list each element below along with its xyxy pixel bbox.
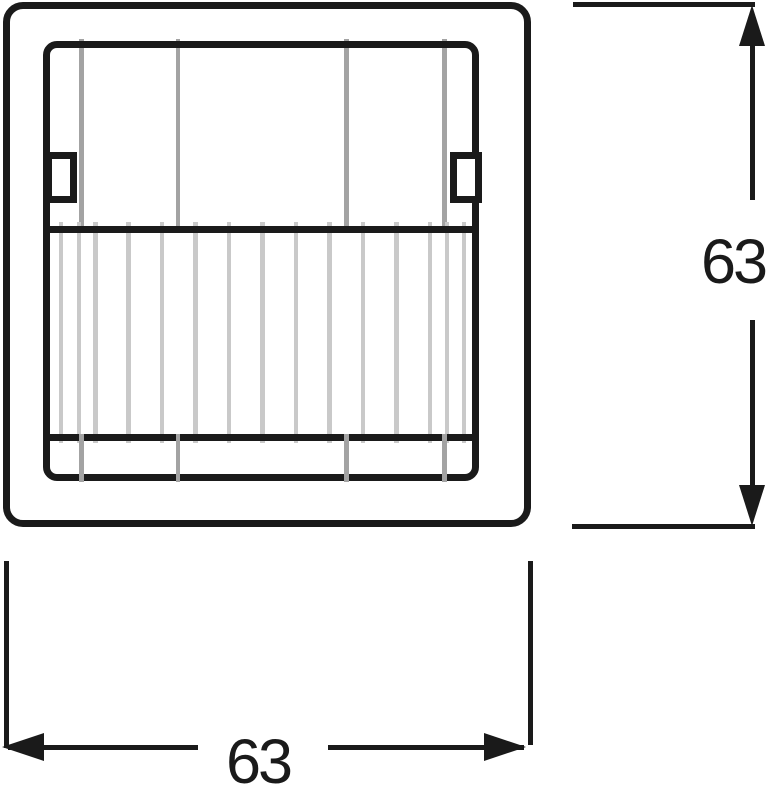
height-dimension-label: 63: [701, 231, 770, 294]
width-extension-line-left: [4, 561, 9, 748]
height-dimension-line-lower: [750, 320, 755, 488]
dimension-drawing: 63 63: [0, 0, 770, 800]
dimension-arrow-down-icon: [739, 485, 765, 526]
dimension-arrow-up-icon: [739, 5, 765, 46]
dimension-arrow-left-icon: [2, 733, 44, 761]
lower-guide-line: [442, 434, 447, 482]
mounting-clip-left: [45, 152, 77, 203]
lens-bottom-edge-line: [46, 434, 476, 441]
lower-guide-line: [79, 434, 84, 482]
lower-guide-line: [176, 434, 181, 482]
dimension-arrow-right-icon: [484, 733, 526, 761]
width-dimension-label: 63: [200, 731, 316, 794]
height-dimension-line-upper: [750, 44, 755, 200]
mounting-clip-right: [450, 152, 482, 203]
width-extension-line-right: [528, 561, 533, 745]
height-extension-line-top: [573, 2, 755, 7]
height-extension-line-bottom: [572, 524, 755, 529]
sensor-module-outline: [43, 41, 479, 481]
lens-top-edge-line: [46, 226, 476, 233]
lower-guide-line: [344, 434, 349, 482]
